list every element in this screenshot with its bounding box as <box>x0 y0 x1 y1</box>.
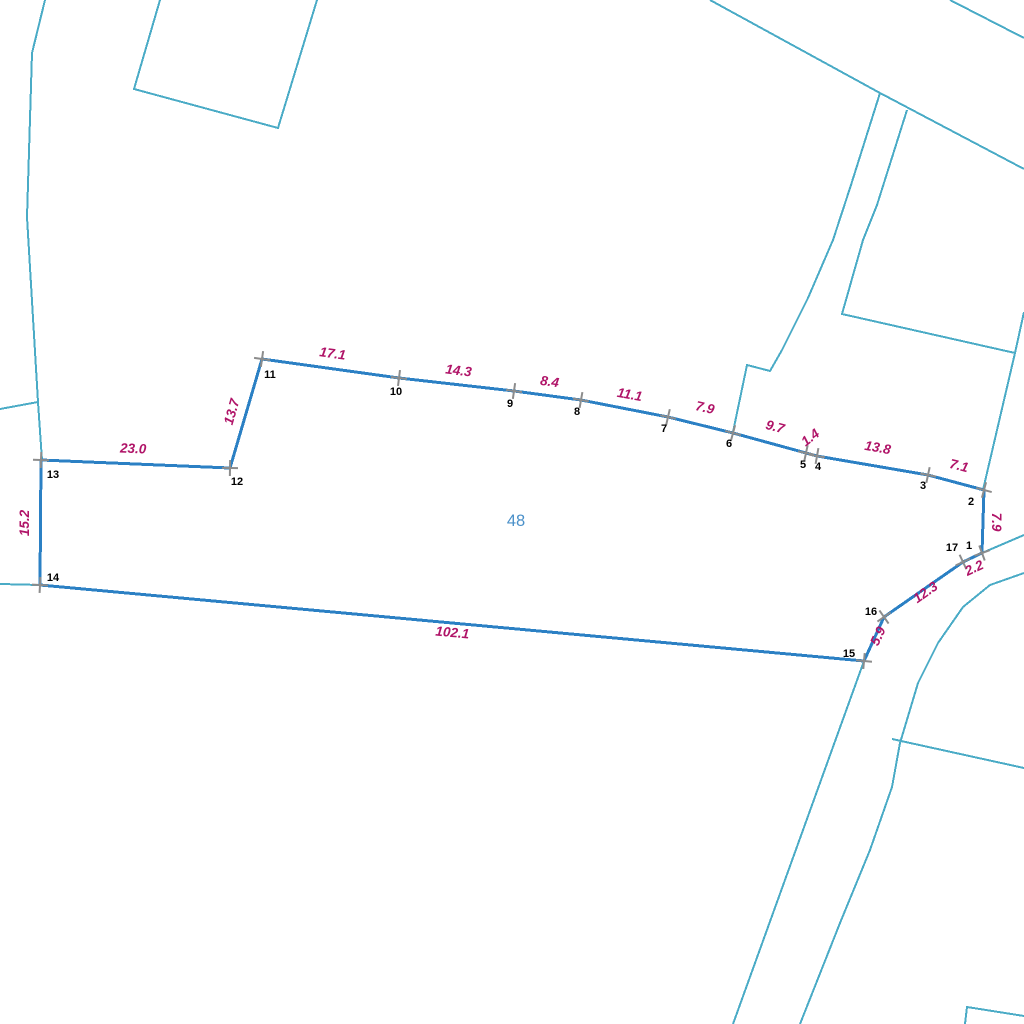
cadastral-map-canvas[interactable]: 1234567891011121314151617 7.97.113.81.49… <box>0 0 1024 1024</box>
segment-length-label-1-2: 7.9 <box>989 513 1004 532</box>
segment-length-label-6-7: 7.9 <box>694 398 716 417</box>
vertex-number-label-13: 13 <box>47 469 59 481</box>
segment-length-label-16-17: 12.3 <box>910 578 941 606</box>
background-boundary-road-top-right-corner <box>950 0 1024 38</box>
vertex-number-label-4: 4 <box>815 461 822 473</box>
vertex-number-label-10: 10 <box>390 386 402 398</box>
parcel-number-label: 48 <box>507 512 525 530</box>
vertex-number-label-3: 3 <box>920 480 926 492</box>
vertex-number-label-8: 8 <box>574 406 580 418</box>
segment-length-label-7-8: 11.1 <box>616 385 644 404</box>
vertex-number-label-1: 1 <box>966 540 972 552</box>
vertex-tick-11 <box>253 350 271 368</box>
vertex-number-label-2: 2 <box>968 496 974 508</box>
vertex-tick-15 <box>855 652 872 669</box>
background-boundary-boundary-south-from-15 <box>733 661 864 1024</box>
vertex-number-label-6: 6 <box>726 438 732 450</box>
segment-length-label-10-11: 17.1 <box>319 344 347 363</box>
cadastral-map[interactable]: 1234567891011121314151617 7.97.113.81.49… <box>0 0 1024 1024</box>
segment-length-label-14-15: 102.1 <box>435 624 470 642</box>
background-boundary-boundary-west-vertical <box>27 0 45 460</box>
background-boundary-road-north-east-diagonal <box>710 0 1024 169</box>
segment-length-label-12-13: 23.0 <box>119 441 147 457</box>
background-boundary-boundary-west-lateral <box>0 402 38 409</box>
vertex-tick-10 <box>390 369 408 387</box>
segment-length-label-9-10: 14.3 <box>445 361 473 379</box>
background-boundary-parcel-north-west <box>134 0 317 128</box>
segment-length-label-5-6: 9.7 <box>764 417 787 437</box>
vertex-tick-12 <box>222 460 238 476</box>
segment-length-label-3-4: 13.8 <box>864 438 893 457</box>
vertex-number-label-11: 11 <box>264 369 276 381</box>
segment-length-label-2-3: 7.1 <box>948 456 970 475</box>
vertex-number-label-14: 14 <box>47 572 60 584</box>
background-boundary-parcel-south-east-corner <box>965 1007 1024 1024</box>
background-boundary-road-branch-east <box>892 739 1024 768</box>
vertex-tick-14 <box>32 577 49 594</box>
background-boundary-boundary-east-to-2 <box>983 312 1024 490</box>
segment-length-label-13-14: 15.2 <box>17 509 32 536</box>
segment-length-label-8-9: 8.4 <box>539 373 560 391</box>
vertex-number-label-17: 17 <box>946 542 958 554</box>
background-boundary-lane-east-edge <box>842 110 1015 353</box>
vertex-number-label-12: 12 <box>231 476 243 488</box>
segment-length-label-4-5: 1.4 <box>798 425 822 449</box>
segment-length-label-11-12: 13.7 <box>221 396 243 427</box>
vertex-number-label-7: 7 <box>661 423 667 435</box>
vertex-tick-13 <box>33 452 50 469</box>
background-boundary-road-east-lower-edge <box>800 573 1024 1024</box>
background-boundary-lane-west-edge-to-6 <box>733 93 880 432</box>
vertex-number-label-9: 9 <box>507 398 513 410</box>
vertex-number-label-15: 15 <box>843 648 855 660</box>
vertex-number-label-5: 5 <box>800 459 806 471</box>
vertex-number-label-16: 16 <box>865 606 877 618</box>
parcel-number-layer: 48 <box>507 512 525 530</box>
